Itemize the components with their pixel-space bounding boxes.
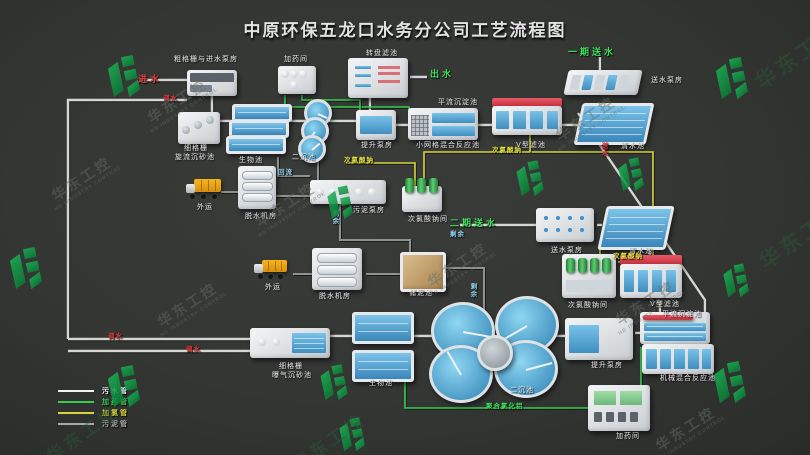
water-cell <box>432 113 475 123</box>
disc-strip <box>378 66 400 69</box>
water-cell <box>569 325 599 353</box>
screen-icon <box>258 338 266 346</box>
flow-return: 回流 <box>278 166 293 176</box>
label-lift-pump-1: 提升泵房 <box>350 140 404 150</box>
lane-line <box>647 326 703 327</box>
dosing-panel <box>594 391 616 405</box>
hopper-icon <box>182 126 190 134</box>
disc-strip <box>355 74 371 77</box>
truck-icon <box>186 177 222 201</box>
flow-outlet: 出水 <box>430 67 454 80</box>
unit-hypochlorite-room-1 <box>402 186 442 212</box>
pump-bay <box>581 75 593 90</box>
mix-cell <box>702 349 711 369</box>
roof-panel <box>190 85 212 92</box>
unit-lift-pump-house-2 <box>565 318 633 360</box>
legend-item-sludge: 污泥管 <box>58 418 129 429</box>
water-cell <box>292 333 326 353</box>
filter-cell <box>530 111 543 129</box>
centrifuge-icon <box>317 265 357 275</box>
hopper-icon <box>206 116 214 124</box>
legend-item-dosing: 加药管 <box>58 396 129 407</box>
pump-bay <box>617 75 629 90</box>
flow-naclo-2: 次氯酸钠 <box>492 144 522 154</box>
label-coarse-screen: 粗格栅与进水泵房 <box>158 54 254 64</box>
label-dosing-room-2: 加药间 <box>604 431 652 441</box>
flow-excess-1: 剩余 <box>329 210 339 225</box>
valve-icon <box>568 228 572 232</box>
label-bio-tank-1: 生物池 <box>228 155 274 165</box>
channel-line <box>238 112 287 113</box>
water-cell <box>644 323 706 331</box>
tank-icon <box>281 70 289 78</box>
label-dewatering-2: 脱水机房 <box>308 291 362 301</box>
flow-transfer-b2: 调水 <box>186 343 201 353</box>
unit-delivery-pump-house-1 <box>563 70 642 95</box>
valve-icon <box>568 216 572 220</box>
unit-rotary-disc-filter <box>348 58 408 98</box>
flow-excess-3: 剩余 <box>467 283 477 298</box>
pump-bay <box>593 75 605 90</box>
lane-line <box>585 120 645 121</box>
green-tank-icon <box>602 258 611 273</box>
lane-line <box>358 369 408 370</box>
channel-line <box>232 144 281 145</box>
lane-line <box>647 336 703 337</box>
label-lift-pump-2: 提升泵房 <box>580 360 634 370</box>
label-fine-screen-1b: 旋流沉砂池 <box>160 152 230 162</box>
label-hypochlorite-room-2: 次氯酸钠间 <box>558 300 618 310</box>
legend-line-sample <box>58 401 94 403</box>
label-secondary-clarifier-1: 二沉池 <box>282 152 326 162</box>
dosing-skid <box>566 280 612 292</box>
green-tank-icon <box>578 258 587 273</box>
rib <box>208 180 209 191</box>
disc-strip <box>355 66 371 69</box>
disc-strip <box>378 80 400 83</box>
pump-icon <box>355 188 363 196</box>
process-flow-diagram: 中原环保五龙口水务分公司工艺流程图 <box>0 0 810 455</box>
mix-cell <box>688 349 699 369</box>
unit-clear-water-tank-1 <box>574 103 655 145</box>
unit-grid-mix-sedimentation-1 <box>408 108 478 140</box>
legend-line-sample <box>58 390 94 392</box>
pump-icon <box>342 188 350 196</box>
lane-line <box>358 323 408 324</box>
dosing-panel <box>620 391 642 405</box>
filter-cell <box>666 270 676 292</box>
unit-bio-tank-1-lane <box>226 136 286 154</box>
lane-line <box>586 113 646 114</box>
unit-dewatering-room-1 <box>238 166 276 209</box>
unit-mechanical-mix-tank <box>642 344 714 374</box>
label-fine-screen-2b: 曝气沉砂池 <box>256 370 328 380</box>
truck-bed <box>194 179 221 192</box>
green-tank-icon <box>429 178 438 193</box>
unit-dewatering-room-2 <box>312 248 362 290</box>
unit-hypochlorite-room-2 <box>562 254 616 298</box>
legend-line-sample <box>58 412 94 414</box>
lane-line <box>610 217 666 218</box>
pump-icon <box>618 412 626 422</box>
label-grid-mix-tank: 小网格混合反应池 <box>404 140 492 150</box>
legend-item-chlorine: 加氯管 <box>58 407 129 418</box>
label-dewatering-1: 脱水机房 <box>236 211 286 221</box>
valve-icon <box>544 216 548 220</box>
skimmer-arm <box>526 362 552 371</box>
unit-sludge-storage-tank <box>400 252 446 292</box>
valve-icon <box>580 228 584 232</box>
flow-inlet: 进水 <box>138 72 162 85</box>
valve-icon <box>556 216 560 220</box>
tank-icon <box>290 81 298 89</box>
lane-line <box>294 348 325 349</box>
water-cell <box>360 116 392 134</box>
lane-line <box>358 331 408 332</box>
label-sedimentation-2: 平流沉淀池 <box>650 309 714 319</box>
filter-cell <box>496 111 509 129</box>
green-tank-icon <box>590 258 599 273</box>
unit-fine-screen-aerated-grit-2 <box>250 328 330 358</box>
disc-strip <box>378 72 400 75</box>
unit-fine-screen-vortex-grit-1 <box>178 112 220 144</box>
rib <box>201 180 202 191</box>
unit-bio-tank-2 <box>352 312 414 344</box>
water-cell <box>644 333 706 341</box>
valve-icon <box>580 216 584 220</box>
label-mechanical-mix: 机械混合反应池 <box>646 373 730 383</box>
lane-line <box>358 361 408 362</box>
pump-icon <box>594 412 602 422</box>
filter-cell <box>547 111 558 129</box>
wheel-icon <box>257 273 264 280</box>
pump-icon <box>329 188 337 196</box>
label-vfilter-2: V型滤池 <box>640 299 690 309</box>
wheel-icon <box>267 273 274 280</box>
unit-lift-pump-house-1 <box>356 110 396 140</box>
green-tank-icon <box>417 178 426 193</box>
label-sludge-pump: 污泥泵房 <box>344 205 394 215</box>
unit-vfilter-2 <box>620 264 682 298</box>
unit-vfilter-1 <box>492 106 562 135</box>
label-dosing-room-1: 加药间 <box>272 54 320 64</box>
label-clear-water-1: 清水池 <box>610 141 656 151</box>
centrifuge-icon <box>317 253 357 263</box>
pump-icon <box>368 188 376 196</box>
screen-icon <box>272 338 280 346</box>
label-delivery-pump-1: 送水泵房 <box>640 75 694 85</box>
lane-line <box>583 127 643 128</box>
label-haul-away-1: 外运 <box>188 202 222 212</box>
wheel-icon <box>200 193 207 200</box>
unit-dosing-room-2 <box>588 385 650 431</box>
skimmer-arm <box>503 325 527 340</box>
label-rotary-disc-filter: 转盘滤池 <box>356 48 408 58</box>
clarifier-hub <box>477 335 513 371</box>
flow-naclo-1: 次氯酸钠 <box>344 154 374 164</box>
pump-bay <box>605 75 617 90</box>
pump-icon <box>630 412 638 422</box>
flow-transfer-top: 调水 <box>163 92 178 102</box>
mix-cell <box>660 349 671 369</box>
unit-delivery-pump-house-2 <box>536 208 594 242</box>
label-bio-tank-2: 生物池 <box>358 378 404 388</box>
disc-strip <box>355 84 371 87</box>
legend-label: 污水管 <box>102 386 129 396</box>
flow-pac: 聚合氯化铝 <box>486 400 524 410</box>
flow-naclo-3: 次氯酸钠 <box>613 250 643 260</box>
channel-line <box>235 128 284 129</box>
centrifuge-icon <box>317 277 357 287</box>
unit-dosing-room-1 <box>278 66 316 94</box>
rib <box>268 261 269 271</box>
roof-panel <box>190 73 234 82</box>
lane-line <box>294 338 325 339</box>
grid-mixer <box>411 115 429 136</box>
truck-bed <box>262 260 287 272</box>
wheel-icon <box>211 193 218 200</box>
legend-item-sewage: 污水管 <box>58 385 129 396</box>
pump-icon <box>316 188 324 196</box>
centrifuge-icon <box>242 182 273 191</box>
filter-cell <box>513 111 526 129</box>
truck-cab <box>186 184 195 193</box>
lane-line <box>606 238 662 239</box>
lane-line <box>609 224 665 225</box>
truck-icon <box>254 258 288 281</box>
pump-icon <box>606 412 614 422</box>
label-delivery-pump-2: 送水泵房 <box>542 245 592 255</box>
tank-icon <box>290 70 298 78</box>
rib <box>281 261 282 271</box>
label-secondary-clarifier-2: 二沉池 <box>502 385 542 395</box>
centrifuge-icon <box>242 193 273 202</box>
water-cell <box>432 126 475 136</box>
wheel-icon <box>189 193 196 200</box>
flow-delivery-pipe: 送水 <box>598 142 608 157</box>
legend-label: 污泥管 <box>102 419 129 429</box>
label-sedimentation-1: 平流沉淀池 <box>426 97 490 107</box>
legend: 污水管 加药管 加氯管 污泥管 <box>58 385 129 429</box>
lane-line <box>294 343 325 344</box>
mix-cell <box>674 349 685 369</box>
valve-icon <box>556 228 560 232</box>
flow-transfer-b1: 调水 <box>108 330 123 340</box>
unit-sludge-pump-house <box>310 180 386 204</box>
hopper-icon <box>194 121 202 129</box>
unit-coarse-screen-pump-house <box>187 70 237 96</box>
rib <box>275 261 276 271</box>
green-tank-icon <box>405 178 414 193</box>
filter-cell <box>624 270 634 292</box>
legend-label: 加氯管 <box>102 408 129 418</box>
page-title: 中原环保五龙口水务分公司工艺流程图 <box>0 16 810 41</box>
lane-line <box>607 231 663 232</box>
skimmer-arm <box>447 351 462 375</box>
label-hypochlorite-room-1: 次氯酸钠间 <box>398 214 458 224</box>
wheel-icon <box>277 273 284 280</box>
flow-excess-2: 剩余 <box>450 228 465 238</box>
flow-phase1-delivery: 一期送水 <box>568 45 616 58</box>
label-haul-away-2: 外运 <box>256 282 290 292</box>
filter-cell <box>652 270 662 292</box>
valve-icon <box>544 228 548 232</box>
mix-cell <box>646 349 657 369</box>
centrifuge-icon <box>242 171 273 180</box>
label-sludge-storage: 储泥池 <box>400 288 442 298</box>
rib <box>215 180 216 191</box>
legend-line-sample <box>58 423 94 425</box>
tank-icon <box>299 70 307 78</box>
unit-clear-water-tank-2 <box>597 206 674 250</box>
pump-bay <box>569 75 581 90</box>
filter-cell <box>638 270 648 292</box>
truck-cab <box>254 264 263 273</box>
legend-label: 加药管 <box>102 397 129 407</box>
lane-line <box>582 134 642 135</box>
skimmer-arm <box>311 143 320 151</box>
green-tank-icon <box>566 258 575 273</box>
